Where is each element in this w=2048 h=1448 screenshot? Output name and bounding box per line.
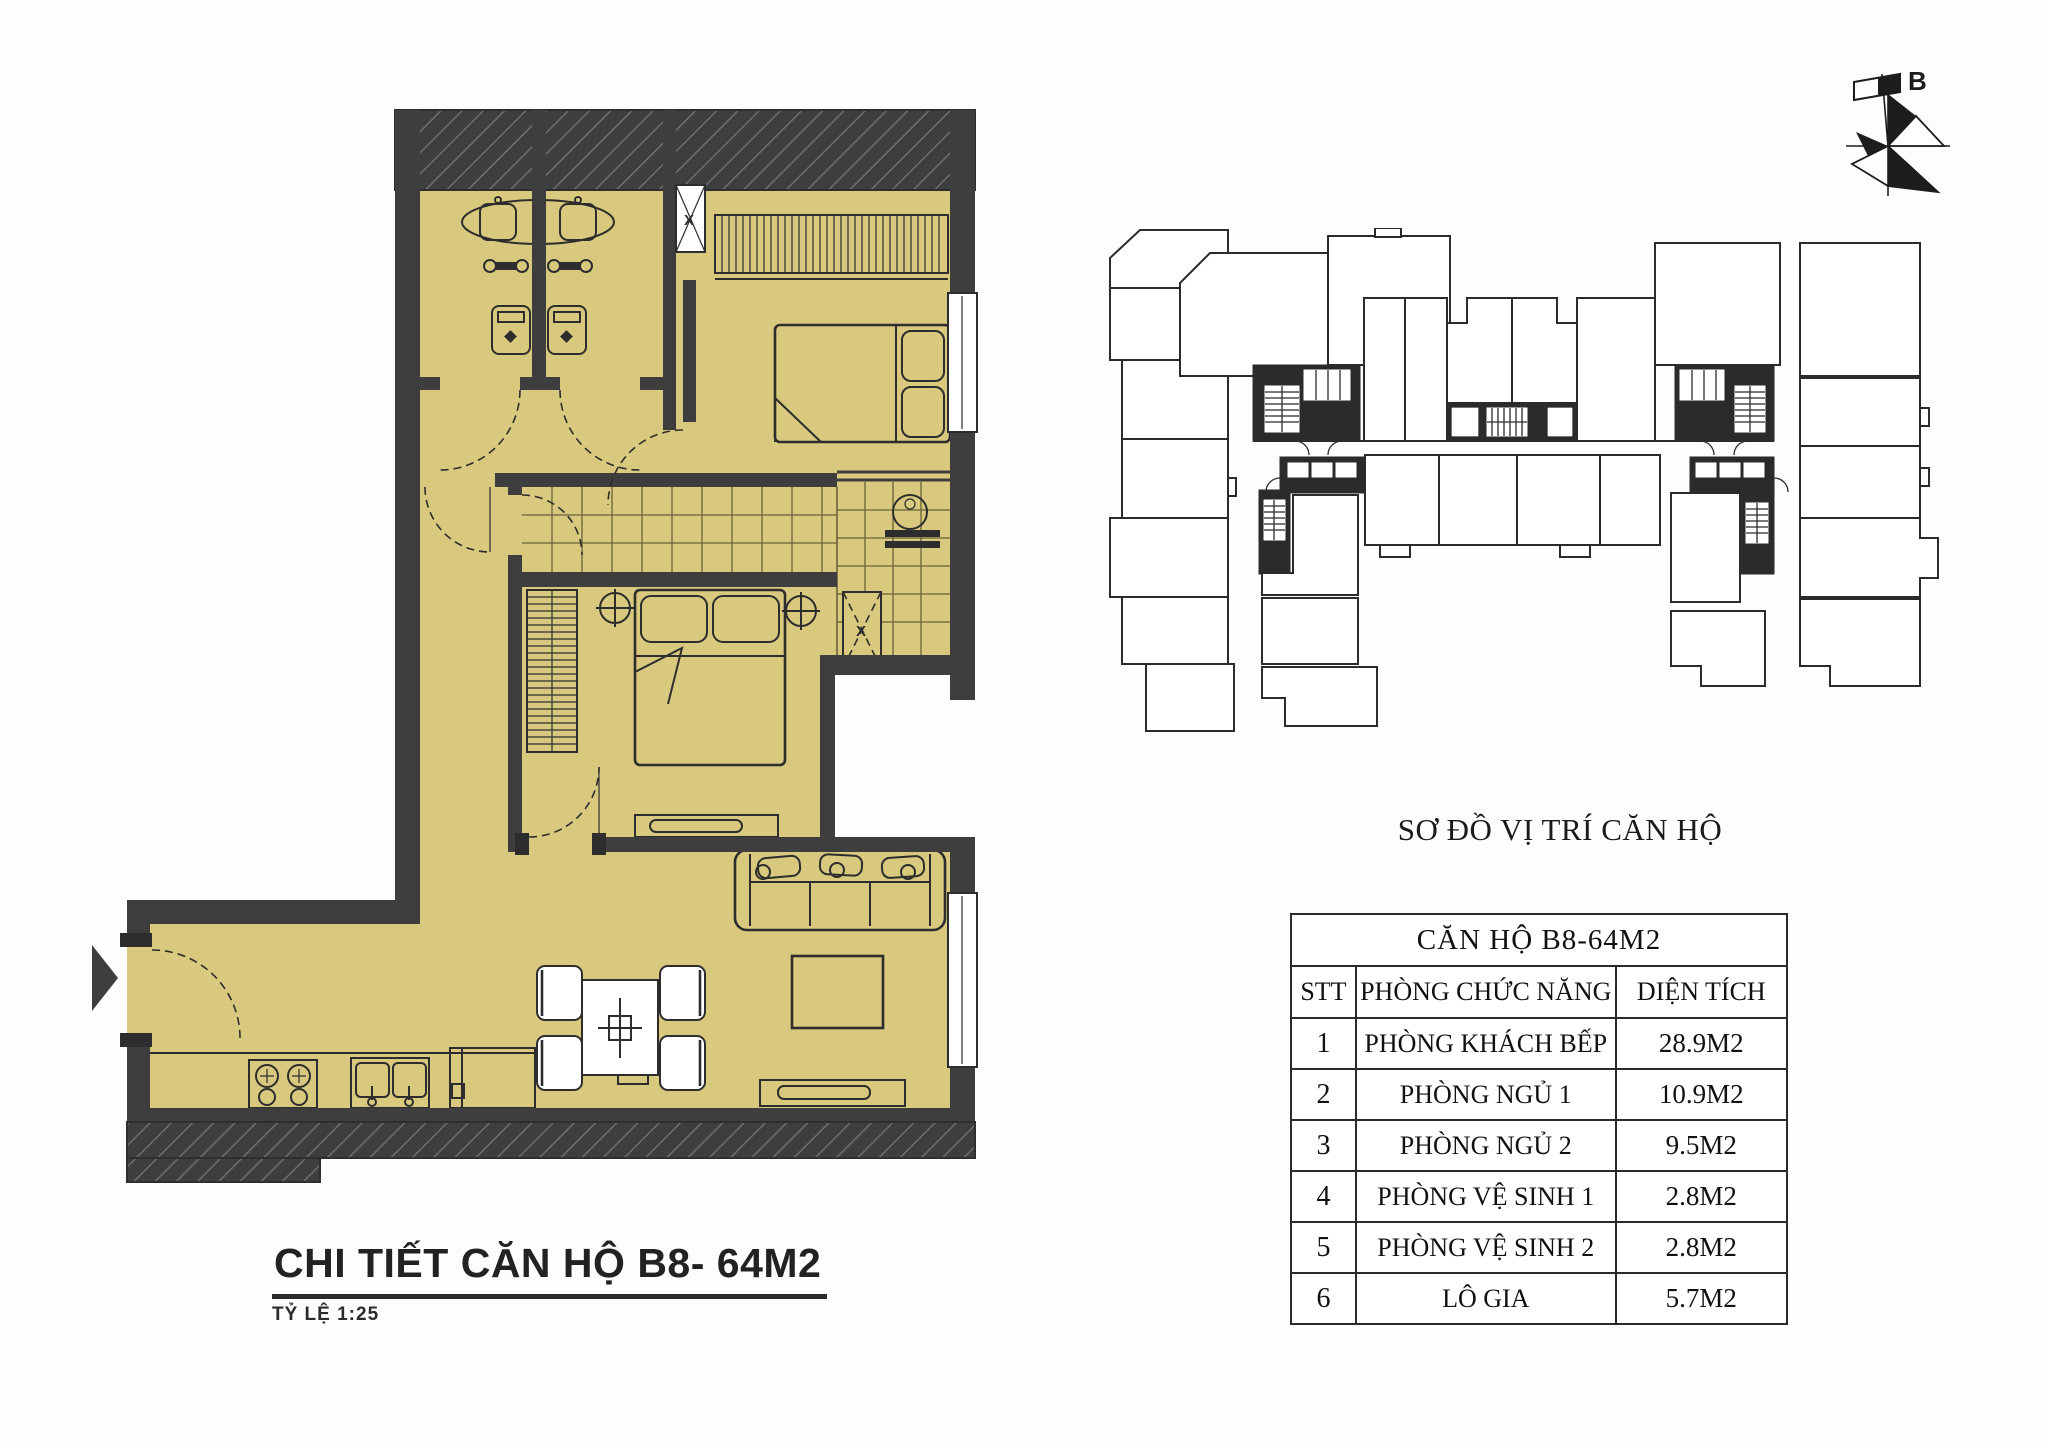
building-overview-plan xyxy=(1080,228,1940,748)
table-row: 3PHÒNG NGỦ 29.5M2 xyxy=(1291,1120,1787,1171)
overview-core-right xyxy=(1671,365,1774,686)
table-cell: 2.8M2 xyxy=(1616,1171,1787,1222)
table-cell: 10.9M2 xyxy=(1616,1069,1787,1120)
detail-floor-plan: X xyxy=(90,100,990,1240)
col-header-area: DIỆN TÍCH xyxy=(1616,966,1787,1018)
svg-text:X: X xyxy=(856,623,866,640)
table-cell: PHÒNG KHÁCH BẾP xyxy=(1356,1018,1616,1069)
detail-plan-title: CHI TIẾT CĂN HỘ B8- 64M2 xyxy=(272,1240,827,1299)
overview-core-left xyxy=(1253,365,1377,726)
table-cell: 6 xyxy=(1291,1273,1356,1324)
col-header-room: PHÒNG CHỨC NĂNG xyxy=(1356,966,1616,1018)
detail-plan-scale: TỶ LỆ 1:25 xyxy=(272,1304,792,1326)
overview-title: SƠ ĐỒ VỊ TRÍ CĂN HỘ xyxy=(1330,812,1790,848)
table-cell: LÔ GIA xyxy=(1356,1273,1616,1324)
table-cell: PHÒNG VỆ SINH 2 xyxy=(1356,1222,1616,1273)
table-cell: 1 xyxy=(1291,1018,1356,1069)
table-title-row: CĂN HỘ B8-64M2 xyxy=(1291,914,1787,966)
table-title: CĂN HỘ B8-64M2 xyxy=(1291,914,1787,966)
table-cell: PHÒNG NGỦ 1 xyxy=(1356,1069,1616,1120)
detail-caption: CHI TIẾT CĂN HỘ B8- 64M2 TỶ LỆ 1:25 xyxy=(272,1240,792,1326)
table-row: 4PHÒNG VỆ SINH 12.8M2 xyxy=(1291,1171,1787,1222)
table-row: 2PHÒNG NGỦ 110.9M2 xyxy=(1291,1069,1787,1120)
table-row: 1PHÒNG KHÁCH BẾP28.9M2 xyxy=(1291,1018,1787,1069)
table-cell: 4 xyxy=(1291,1171,1356,1222)
table-header-row: STT PHÒNG CHỨC NĂNG DIỆN TÍCH xyxy=(1291,966,1787,1018)
area-table: CĂN HỘ B8-64M2 STT PHÒNG CHỨC NĂNG DIỆN … xyxy=(1290,913,1788,1325)
compass-north-icon: B xyxy=(1838,44,1958,204)
duct-shaft-1: X xyxy=(676,185,705,252)
col-header-stt: STT xyxy=(1291,966,1356,1018)
table-cell: 5 xyxy=(1291,1222,1356,1273)
area-table-body: 1PHÒNG KHÁCH BẾP28.9M22PHÒNG NGỦ 110.9M2… xyxy=(1291,1018,1787,1324)
table-cell: PHÒNG VỆ SINH 1 xyxy=(1356,1171,1616,1222)
table-cell: PHÒNG NGỦ 2 xyxy=(1356,1120,1616,1171)
table-cell: 28.9M2 xyxy=(1616,1018,1787,1069)
compass-label: B xyxy=(1908,66,1927,96)
entry-arrow-icon xyxy=(92,945,118,1011)
plan-sheet: { "colors": { "floor": "#d8c97e", "wall"… xyxy=(0,0,2048,1448)
table-row: 5PHÒNG VỆ SINH 22.8M2 xyxy=(1291,1222,1787,1273)
table-cell: 9.5M2 xyxy=(1616,1120,1787,1171)
table-cell: 5.7M2 xyxy=(1616,1273,1787,1324)
table-cell: 3 xyxy=(1291,1120,1356,1171)
window-living xyxy=(948,893,977,1067)
table-cell: 2 xyxy=(1291,1069,1356,1120)
window-bedroom1 xyxy=(948,293,977,432)
svg-text:X: X xyxy=(684,212,694,229)
table-row: 6LÔ GIA5.7M2 xyxy=(1291,1273,1787,1324)
table-cell: 2.8M2 xyxy=(1616,1222,1787,1273)
